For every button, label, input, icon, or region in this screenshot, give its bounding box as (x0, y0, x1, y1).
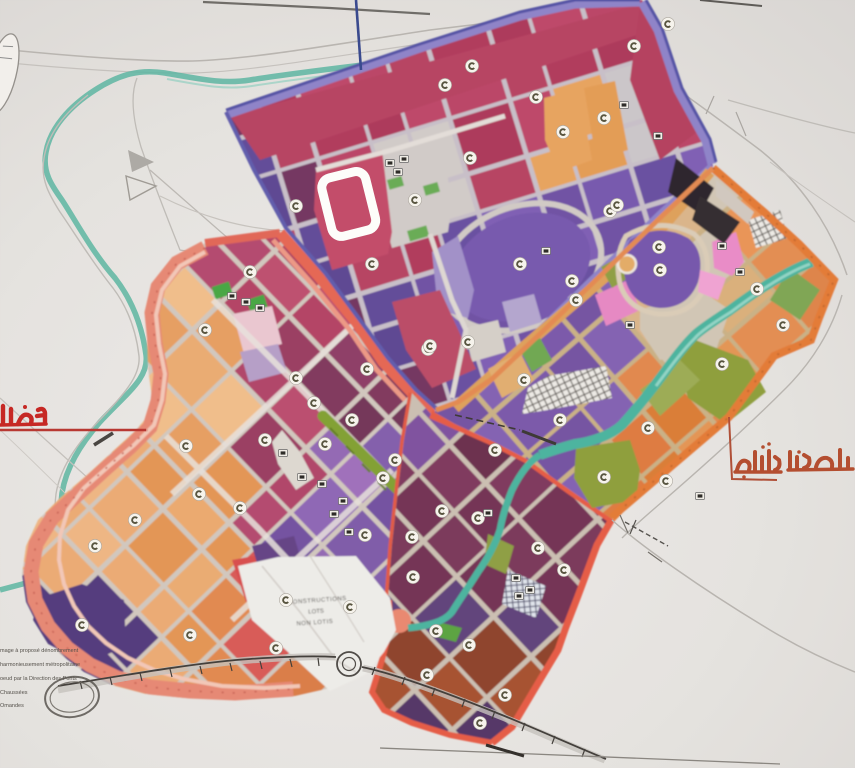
svg-text:oeud par la Direction des Pont: oeud par la Direction des Ponts (0, 676, 77, 682)
svg-text:mage à proposé dénombrement: mage à proposé dénombrement (0, 648, 79, 654)
svg-text:Chaussées: Chaussées (0, 690, 28, 696)
svg-text:Omandes: Omandes (0, 703, 24, 709)
svg-text:harmonieusement métropolitaine: harmonieusement métropolitaine (0, 662, 80, 668)
